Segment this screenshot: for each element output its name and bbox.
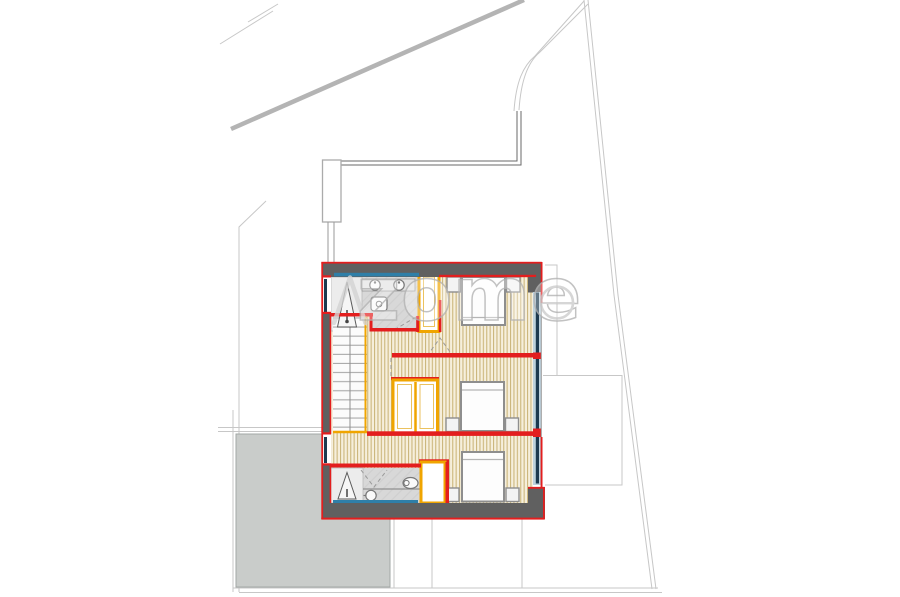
bedroom-partition-wall: [392, 353, 541, 358]
perimeter-red-line: [321, 263, 323, 520]
west-window-glass: [324, 437, 327, 463]
perimeter-red-line: [321, 518, 545, 520]
retaining-wall-line: [340, 111, 517, 161]
east-window-glass: [536, 359, 539, 429]
driveway-curve: [519, 4, 588, 110]
wall-face-line: [330, 465, 332, 503]
nightstand: [506, 418, 519, 432]
window-jamb: [322, 275, 331, 277]
floor-plan-canvas: zome: [0, 0, 900, 597]
wall-stub: [446, 462, 450, 503]
shower-tap-icon: [345, 320, 349, 324]
nightstand: [506, 488, 519, 502]
driveway-curve: [514, 1, 584, 111]
bed-2: [461, 382, 504, 431]
site-boundary-segment: [220, 11, 273, 44]
perimeter-red-line: [541, 437, 543, 488]
toilet-icon: [403, 478, 418, 489]
west-window-glass: [324, 279, 327, 312]
floor-plan-drawing: zome: [0, 0, 900, 597]
south-wall: [322, 503, 545, 519]
bathroom-2-wall: [331, 464, 421, 468]
wall-face-line: [330, 313, 332, 434]
washbasin-icon: [366, 490, 376, 500]
nightstand: [446, 418, 459, 432]
wardrobe-unit: [421, 462, 445, 503]
window-mullion: [533, 429, 541, 438]
east-window-glass: [536, 437, 539, 484]
site-boundary-segment: [248, 4, 278, 22]
road-edge-line: [231, 0, 524, 129]
bedroom-partition-wall: [367, 431, 541, 436]
window-mullion: [533, 353, 541, 360]
east-property-line: [588, 0, 656, 589]
watermark-text: zome: [357, 252, 582, 338]
retaining-wall-line: [340, 111, 521, 165]
south-wall-step: [528, 487, 545, 503]
bathroom-2-window: [333, 500, 418, 504]
watermark: zome: [334, 252, 582, 338]
upper-wall-outline: [323, 160, 342, 222]
